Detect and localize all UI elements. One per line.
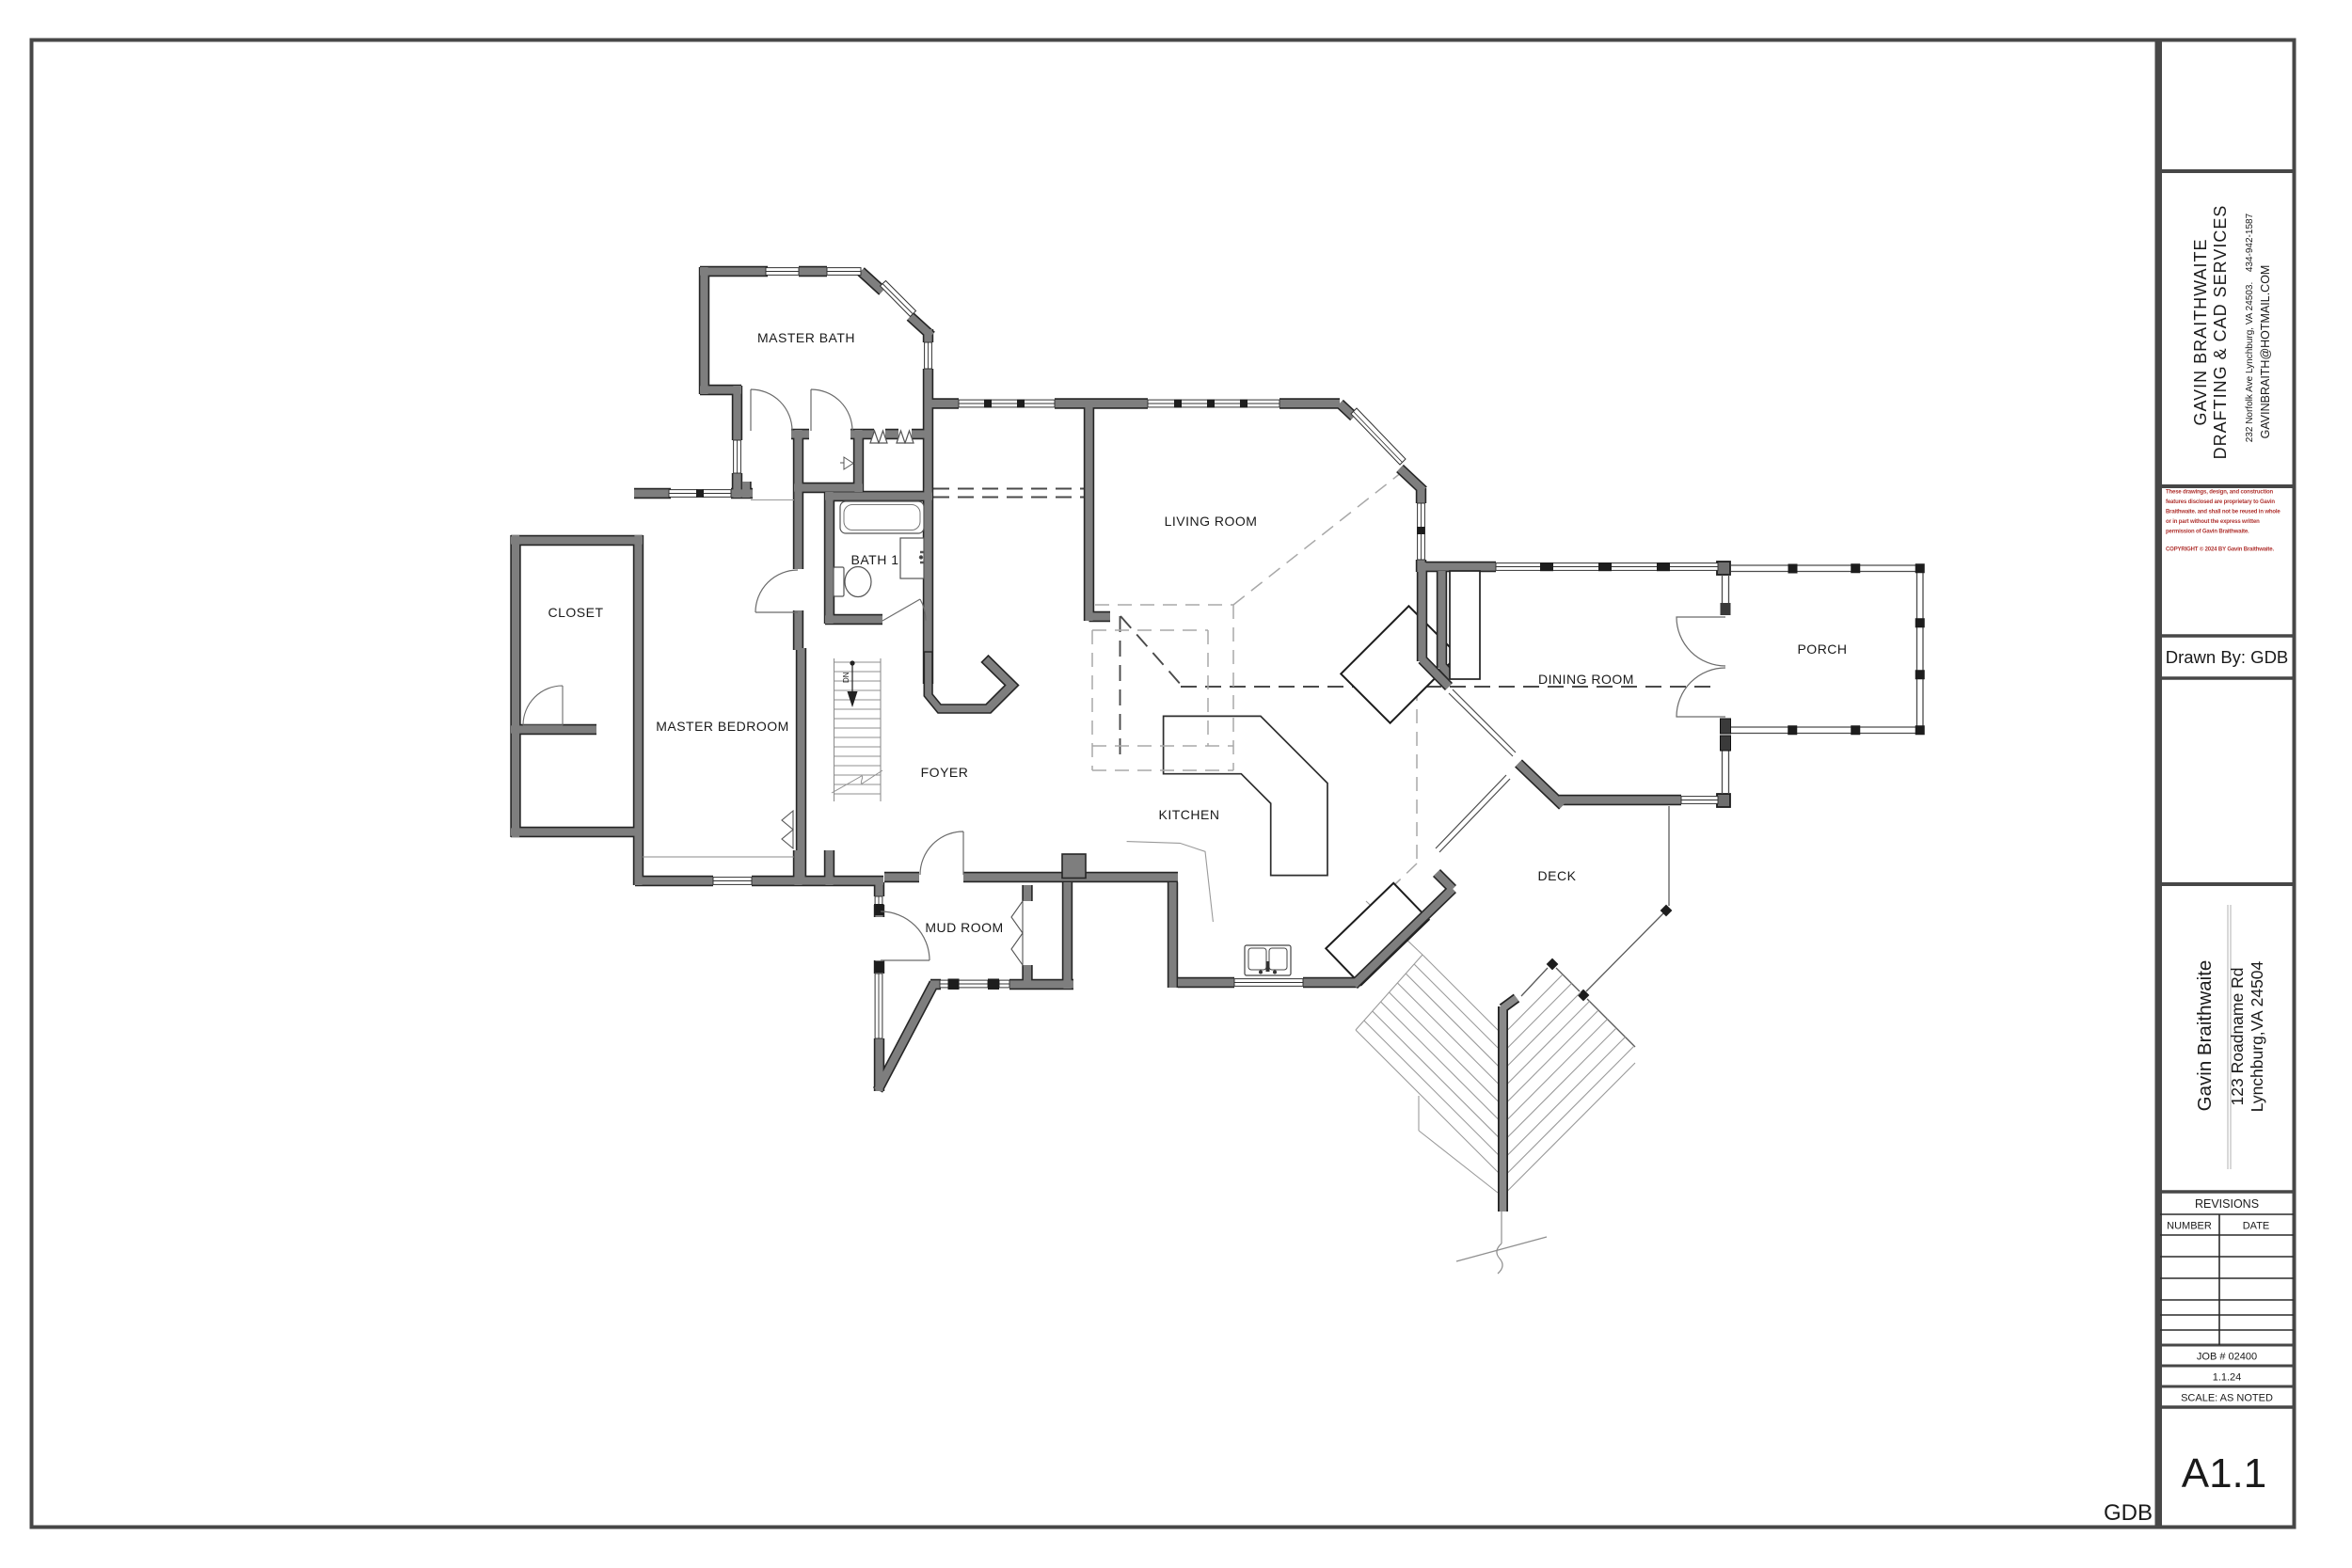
svg-text:or in part without the express: or in part without the express written [2166, 519, 2260, 525]
svg-text:GDB: GDB [2104, 1500, 2153, 1526]
svg-text:REVISIONS: REVISIONS [2195, 1197, 2259, 1211]
svg-text:LIVING ROOM: LIVING ROOM [1165, 514, 1258, 529]
svg-text:CLOSET: CLOSET [548, 605, 603, 620]
svg-text:DINING ROOM: DINING ROOM [1538, 672, 1634, 687]
svg-text:DRAFTING & CAD SERVICES: DRAFTING & CAD SERVICES [2211, 205, 2230, 460]
svg-text:232 Norfolk Ave Lynchburg, VA: 232 Norfolk Ave Lynchburg, VA 24503. [2245, 282, 2255, 443]
svg-text:JOB # 02400: JOB # 02400 [2197, 1352, 2257, 1363]
svg-text:DN: DN [842, 672, 850, 683]
svg-text:Gavin Braithwaite: Gavin Braithwaite [2194, 960, 2216, 1112]
svg-text:DECK: DECK [1538, 868, 1577, 883]
svg-text:434-942-1587: 434-942-1587 [2245, 213, 2255, 272]
svg-text:A1.1: A1.1 [2182, 1450, 2267, 1497]
svg-text:123 Roadname Rd: 123 Roadname Rd [2228, 968, 2247, 1106]
svg-text:permission of Gavin Braithwait: permission of Gavin Braithwaite. [2166, 530, 2249, 535]
svg-text:MASTER BEDROOM: MASTER BEDROOM [656, 719, 789, 734]
svg-text:MASTER BATH: MASTER BATH [757, 330, 855, 345]
svg-text:KITCHEN: KITCHEN [1159, 807, 1220, 822]
svg-text:Braithwaite. and shall not be: Braithwaite. and shall not be reused in … [2166, 510, 2280, 515]
svg-text:Drawn By: GDB: Drawn By: GDB [2166, 647, 2289, 667]
svg-text:PORCH: PORCH [1797, 641, 1847, 657]
svg-text:1.1.24: 1.1.24 [2213, 1372, 2242, 1384]
svg-text:COPYRIGHT © 2024 BY Gavin Brai: COPYRIGHT © 2024 BY Gavin Braithwaite. [2166, 546, 2274, 553]
svg-text:features disclosed are proprie: features disclosed are proprietary to Ga… [2166, 499, 2275, 505]
svg-text:These drawings, design, and co: These drawings, design, and construction [2166, 490, 2274, 496]
svg-text:NUMBER: NUMBER [2167, 1221, 2212, 1232]
svg-text:FOYER: FOYER [921, 765, 969, 780]
svg-text:MUD ROOM: MUD ROOM [925, 920, 1003, 935]
svg-text:DATE: DATE [2243, 1221, 2270, 1232]
svg-text:GAVINBRAITH@HOTMAIL.COM: GAVINBRAITH@HOTMAIL.COM [2259, 265, 2272, 439]
svg-text:Lynchburg,VA 24504: Lynchburg,VA 24504 [2248, 960, 2266, 1112]
svg-text:SCALE: AS NOTED: SCALE: AS NOTED [2181, 1393, 2273, 1404]
svg-text:GAVIN BRAITHWAITE: GAVIN BRAITHWAITE [2191, 238, 2210, 425]
svg-text:BATH 1: BATH 1 [851, 552, 899, 567]
